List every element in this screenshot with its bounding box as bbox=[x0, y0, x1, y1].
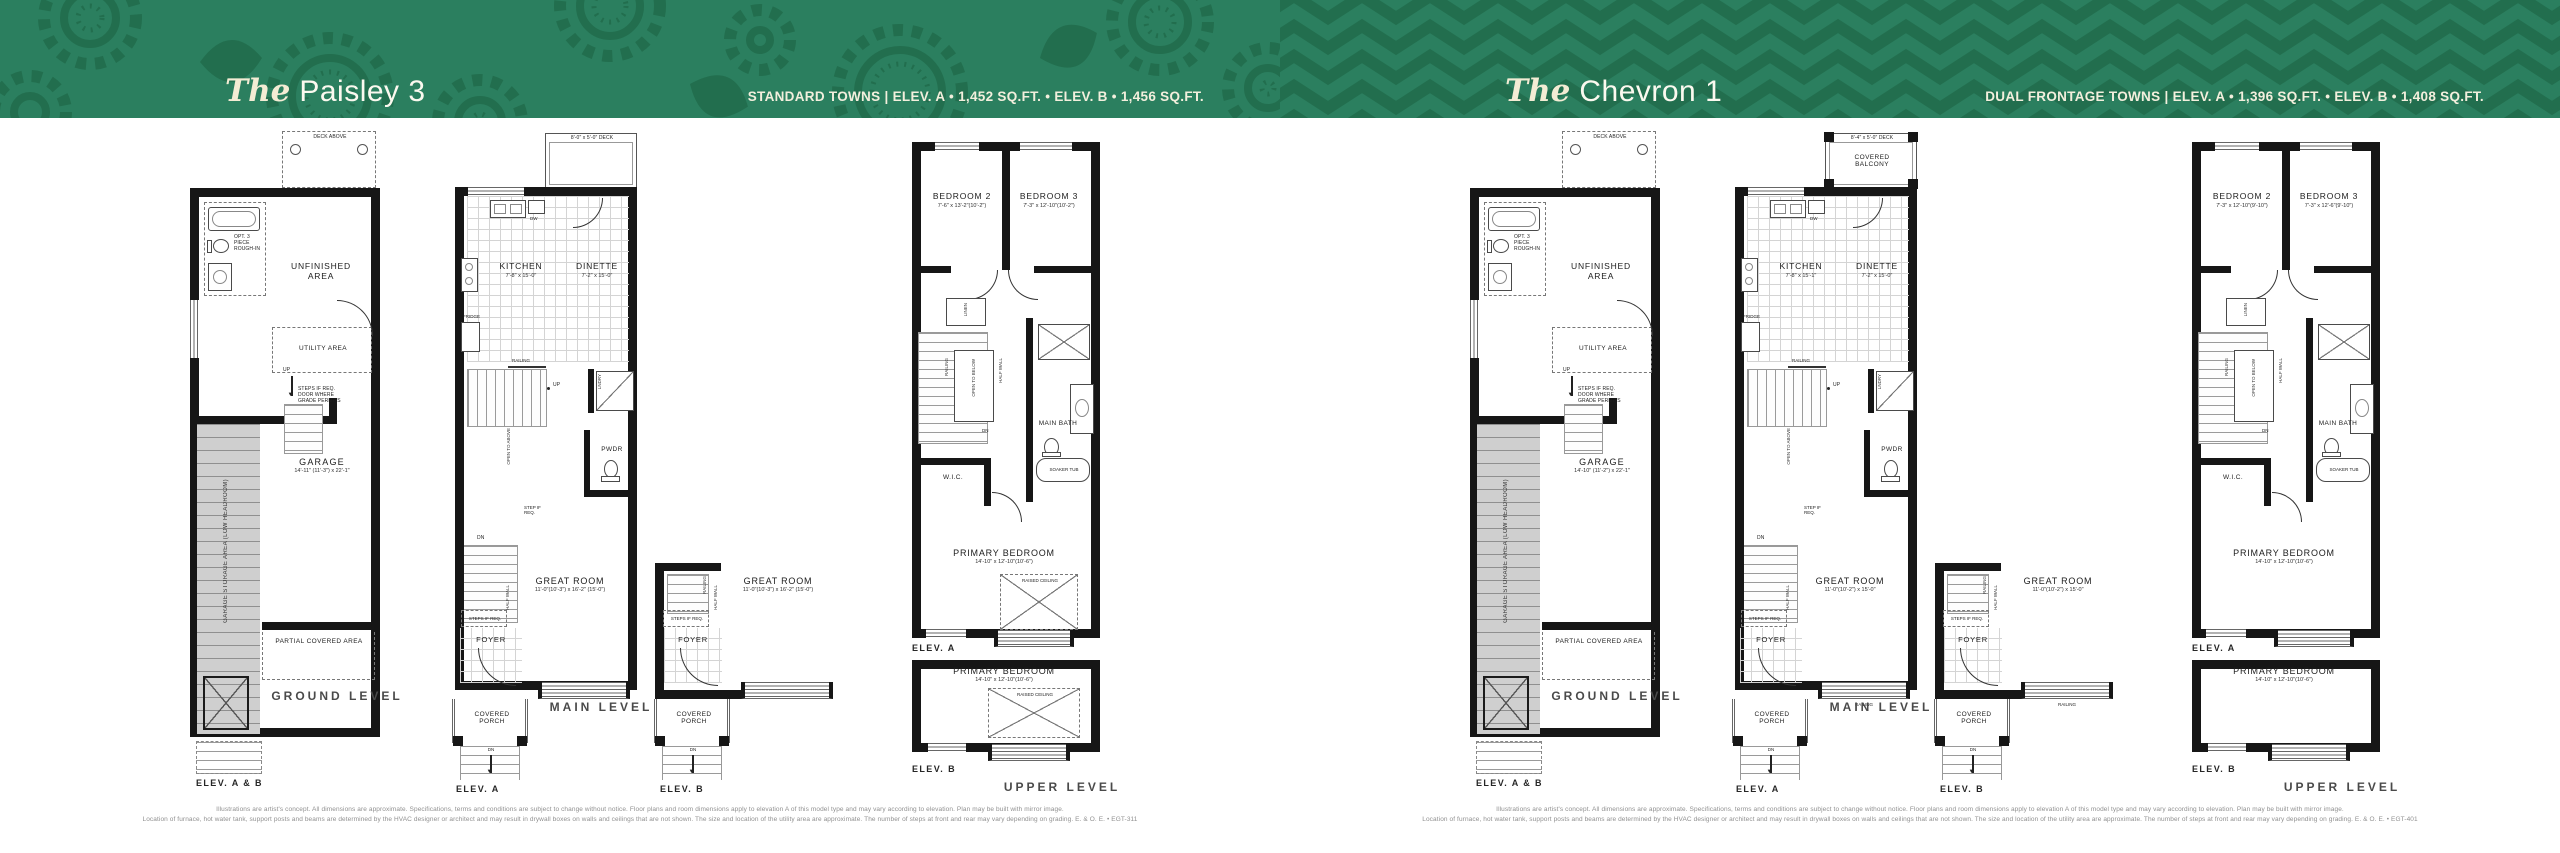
floorplan-sheet: ThePaisley 3 STANDARD TOWNS | ELEV. A • … bbox=[0, 0, 2560, 853]
model-panel: DECK ABOVE OPT. 3 PIECE ROUGH-IN UNFINIS… bbox=[0, 0, 1280, 853]
disclaimer-line-1: Illustrations are artist's concept. All … bbox=[20, 806, 1260, 813]
disclaimer-block: Illustrations are artist's concept. All … bbox=[1280, 0, 2560, 853]
disclaimer-block: Illustrations are artist's concept. All … bbox=[0, 0, 1280, 853]
disclaimer-line-2: Location of furnace, hot water tank, sup… bbox=[1300, 816, 2540, 823]
model-panel: DECK ABOVE OPT. 3 PIECE ROUGH-IN UNFINIS… bbox=[1280, 0, 2560, 853]
disclaimer-line-1: Illustrations are artist's concept. All … bbox=[1300, 806, 2540, 813]
disclaimer-line-2: Location of furnace, hot water tank, sup… bbox=[20, 816, 1260, 823]
